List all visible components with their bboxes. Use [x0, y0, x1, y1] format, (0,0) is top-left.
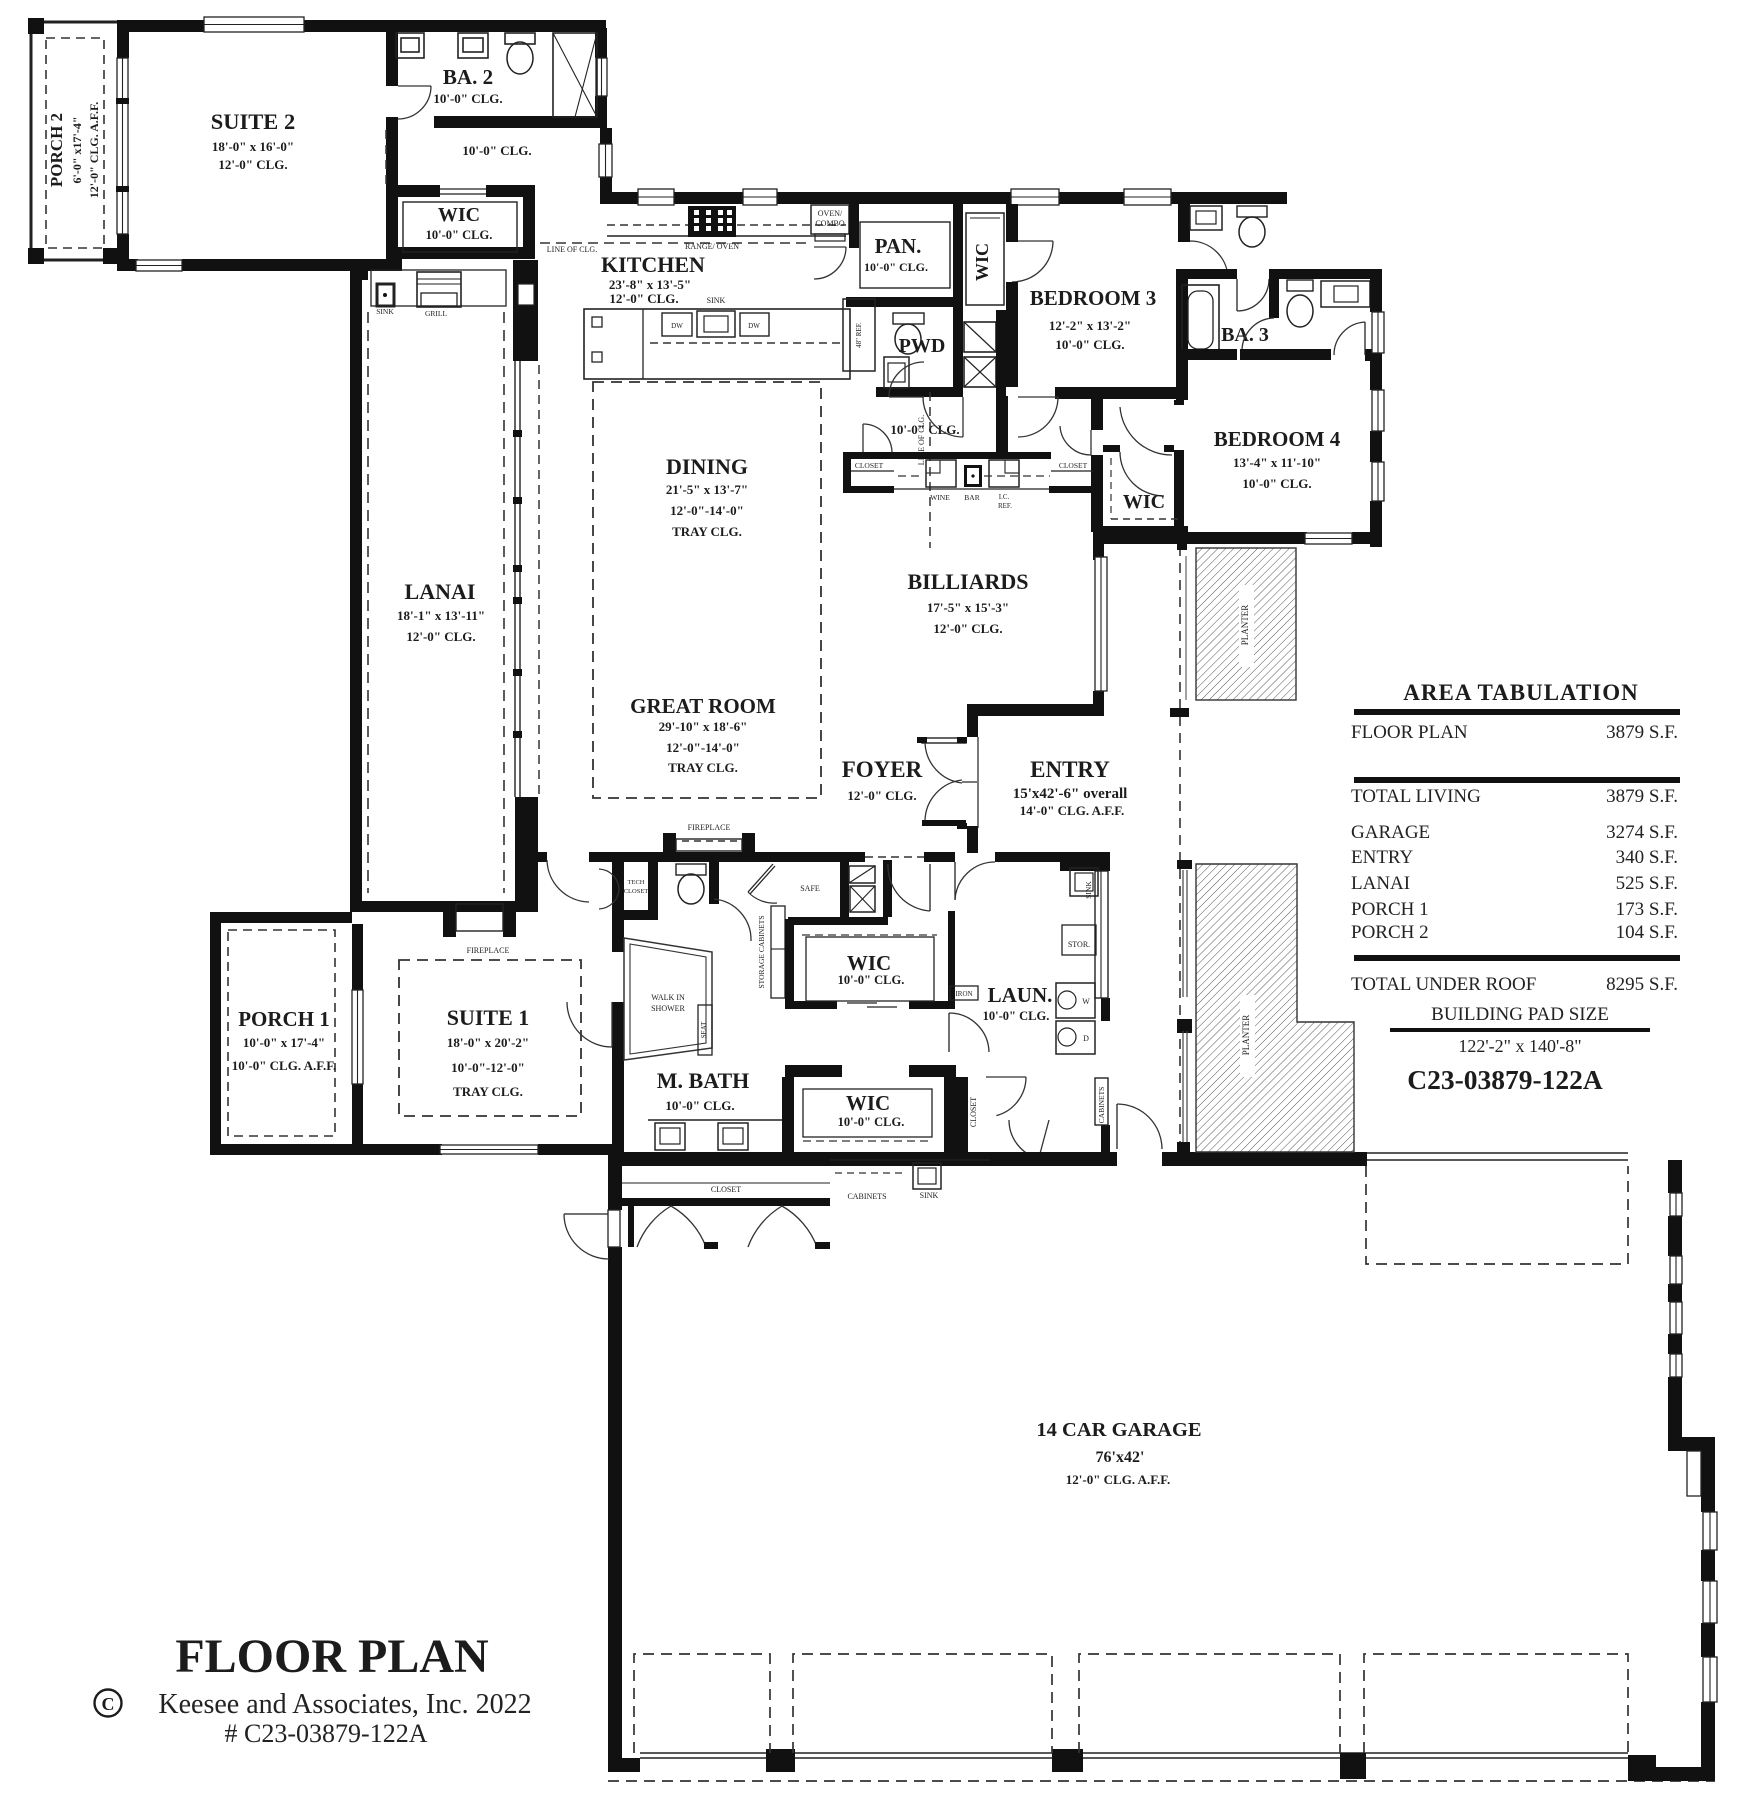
svg-text:COMBO: COMBO [815, 219, 845, 228]
svg-text:12'-0" CLG. A.F.F.: 12'-0" CLG. A.F.F. [87, 102, 101, 198]
svg-text:# C23-03879-122A: # C23-03879-122A [225, 1719, 428, 1748]
svg-text:LINE OF CLG.: LINE OF CLG. [547, 245, 597, 254]
svg-text:BUILDING PAD SIZE: BUILDING PAD SIZE [1431, 1004, 1609, 1025]
svg-text:12'-0"-14'-0": 12'-0"-14'-0" [670, 503, 744, 518]
svg-text:29'-10" x 18'-6": 29'-10" x 18'-6" [659, 719, 748, 734]
svg-text:FLOOR PLAN: FLOOR PLAN [1351, 722, 1468, 743]
svg-text:STORAGE CABINETS: STORAGE CABINETS [757, 916, 766, 989]
svg-text:18'-0" x 20'-2": 18'-0" x 20'-2" [447, 1035, 529, 1050]
svg-text:CLOSET: CLOSET [1059, 461, 1088, 470]
svg-text:SHOWER: SHOWER [651, 1004, 685, 1013]
svg-text:PLANTER: PLANTER [1241, 1015, 1251, 1056]
svg-text:21'-5" x 13'-7": 21'-5" x 13'-7" [666, 482, 748, 497]
svg-text:17'-5" x 15'-3": 17'-5" x 15'-3" [927, 600, 1009, 615]
svg-text:48" REF.: 48" REF. [855, 322, 863, 348]
svg-text:SUITE 1: SUITE 1 [447, 1005, 530, 1030]
svg-text:DINING: DINING [666, 454, 748, 479]
svg-text:12'-0" CLG.: 12'-0" CLG. [406, 629, 475, 644]
svg-text:SINK: SINK [376, 307, 394, 316]
svg-text:3879 S.F.: 3879 S.F. [1606, 786, 1678, 807]
svg-text:12'-0" CLG.: 12'-0" CLG. [609, 291, 678, 306]
svg-text:GARAGE: GARAGE [1351, 822, 1430, 843]
svg-text:WIC: WIC [846, 1091, 890, 1115]
svg-text:76'x42': 76'x42' [1096, 1449, 1145, 1466]
svg-text:BEDROOM 4: BEDROOM 4 [1214, 427, 1341, 451]
svg-text:STOR.: STOR. [1068, 940, 1090, 949]
svg-text:BA. 2: BA. 2 [443, 65, 493, 89]
svg-text:DW: DW [748, 322, 760, 330]
svg-text:BEDROOM 3: BEDROOM 3 [1030, 286, 1157, 310]
svg-text:WIC: WIC [1123, 491, 1165, 513]
svg-text:TOTAL LIVING: TOTAL LIVING [1351, 786, 1481, 807]
svg-text:FLOOR PLAN: FLOOR PLAN [175, 1630, 489, 1683]
svg-text:10'-0" CLG.: 10'-0" CLG. [1242, 476, 1311, 491]
svg-text:CLOSET: CLOSET [624, 888, 649, 895]
svg-text:12'-0"-14'-0": 12'-0"-14'-0" [666, 740, 740, 755]
svg-text:PORCH 2: PORCH 2 [1351, 922, 1429, 943]
svg-text:DW: DW [671, 322, 683, 330]
svg-text:8295 S.F.: 8295 S.F. [1606, 974, 1678, 995]
svg-text:CLOSET: CLOSET [855, 461, 884, 470]
svg-text:10'-0" CLG.: 10'-0" CLG. [1055, 337, 1124, 352]
svg-text:IRON: IRON [955, 990, 972, 998]
svg-text:14'-0" CLG. A.F.F.: 14'-0" CLG. A.F.F. [1020, 803, 1125, 818]
svg-text:PLANTER: PLANTER [1240, 605, 1250, 646]
svg-text:18'-1" x 13'-11": 18'-1" x 13'-11" [397, 608, 485, 623]
svg-text:LANAI: LANAI [405, 579, 476, 604]
svg-text:SINK: SINK [707, 296, 726, 305]
svg-text:PORCH 2: PORCH 2 [47, 113, 66, 187]
svg-text:10'-0" x 17'-4": 10'-0" x 17'-4" [243, 1035, 325, 1050]
svg-text:10'-0"-12'-0": 10'-0"-12'-0" [451, 1060, 525, 1075]
svg-text:10'-0" CLG.: 10'-0" CLG. [983, 1009, 1050, 1023]
svg-text:CLOSET: CLOSET [969, 1097, 978, 1127]
svg-text:AREA TABULATION: AREA TABULATION [1403, 680, 1638, 705]
svg-text:FIREPLACE: FIREPLACE [467, 946, 510, 955]
svg-text:LANAI: LANAI [1351, 873, 1410, 894]
svg-text:I.C.: I.C. [999, 493, 1010, 501]
svg-text:GRILL: GRILL [425, 309, 447, 318]
svg-text:122'-2" x 140'-8": 122'-2" x 140'-8" [1458, 1036, 1581, 1056]
svg-text:SINK: SINK [1084, 881, 1093, 899]
svg-text:WALK IN: WALK IN [651, 993, 685, 1002]
svg-text:SEAT: SEAT [700, 1021, 708, 1038]
svg-text:TRAY CLG.: TRAY CLG. [453, 1084, 523, 1099]
svg-text:18'-0" x 16'-0": 18'-0" x 16'-0" [212, 139, 294, 154]
svg-text:PWD: PWD [899, 335, 946, 357]
svg-text:13'-4" x 11'-10": 13'-4" x 11'-10" [1233, 455, 1321, 470]
svg-text:ENTRY: ENTRY [1030, 757, 1110, 782]
svg-text:PORCH 1: PORCH 1 [1351, 899, 1429, 920]
svg-text:3274 S.F.: 3274 S.F. [1606, 822, 1678, 843]
svg-text:10'-0" CLG.: 10'-0" CLG. [433, 91, 502, 106]
svg-text:6'-0" x17'-4": 6'-0" x17'-4" [70, 117, 84, 184]
svg-text:BAR: BAR [964, 493, 979, 502]
svg-text:BILLIARDS: BILLIARDS [907, 569, 1028, 594]
svg-text:12'-0" CLG.: 12'-0" CLG. [933, 621, 1002, 636]
svg-text:M. BATH: M. BATH [657, 1068, 749, 1093]
svg-text:SUITE 2: SUITE 2 [211, 109, 295, 134]
svg-text:D: D [1083, 1034, 1089, 1043]
svg-text:LAUN.: LAUN. [988, 983, 1053, 1007]
svg-text:TOTAL UNDER ROOF: TOTAL UNDER ROOF [1351, 974, 1536, 995]
svg-text:CABINETS: CABINETS [847, 1192, 886, 1201]
svg-text:C23-03879-122A: C23-03879-122A [1407, 1064, 1603, 1095]
svg-text:3879 S.F.: 3879 S.F. [1606, 722, 1678, 743]
svg-text:Keesee and Associates, Inc. 20: Keesee and Associates, Inc. 2022 [158, 1689, 531, 1720]
svg-text:104 S.F.: 104 S.F. [1616, 922, 1678, 943]
svg-text:10'-0" CLG.: 10'-0" CLG. [838, 1115, 905, 1129]
svg-text:12'-0" CLG.: 12'-0" CLG. [847, 788, 916, 803]
svg-text:C: C [102, 1694, 115, 1714]
svg-text:WINE: WINE [930, 493, 950, 502]
svg-text:PORCH 1: PORCH 1 [238, 1007, 330, 1031]
svg-text:BA. 3: BA. 3 [1221, 324, 1269, 346]
svg-text:PAN.: PAN. [875, 234, 922, 258]
svg-text:TRAY CLG.: TRAY CLG. [672, 524, 742, 539]
svg-text:TRAY CLG.: TRAY CLG. [668, 760, 738, 775]
svg-text:340 S.F.: 340 S.F. [1616, 847, 1678, 868]
svg-text:W: W [1082, 997, 1090, 1006]
svg-text:10'-0" CLG.: 10'-0" CLG. [462, 143, 531, 158]
svg-text:173 S.F.: 173 S.F. [1616, 899, 1678, 920]
svg-text:10'-0" CLG.: 10'-0" CLG. [665, 1098, 734, 1113]
svg-text:WIC: WIC [972, 243, 992, 281]
svg-text:14 CAR GARAGE: 14 CAR GARAGE [1036, 1419, 1201, 1441]
svg-text:ENTRY: ENTRY [1351, 847, 1414, 868]
svg-text:15'x42'-6" overall: 15'x42'-6" overall [1013, 786, 1128, 802]
svg-text:OVEN/: OVEN/ [818, 209, 843, 218]
svg-text:23'-8" x 13'-5": 23'-8" x 13'-5" [609, 277, 691, 292]
svg-text:WIC: WIC [438, 204, 480, 226]
svg-text:12'-0" CLG.: 12'-0" CLG. [218, 157, 287, 172]
svg-text:GREAT ROOM: GREAT ROOM [630, 694, 776, 718]
svg-text:REF.: REF. [998, 502, 1012, 510]
svg-text:525 S.F.: 525 S.F. [1616, 873, 1678, 894]
svg-text:10'-0" CLG.: 10'-0" CLG. [426, 228, 493, 242]
svg-text:KITCHEN: KITCHEN [601, 252, 705, 277]
svg-text:10'-0" CLG.: 10'-0" CLG. [864, 260, 928, 274]
svg-text:10'-0" CLG. A.F.F.: 10'-0" CLG. A.F.F. [232, 1058, 337, 1073]
svg-text:FOYER: FOYER [842, 757, 923, 782]
svg-text:CLOSET: CLOSET [711, 1185, 741, 1194]
svg-text:12'-2" x 13'-2": 12'-2" x 13'-2" [1049, 318, 1131, 333]
svg-text:SINK: SINK [920, 1191, 939, 1200]
svg-text:WIC: WIC [847, 951, 891, 975]
svg-text:SAFE: SAFE [800, 884, 820, 893]
svg-text:10'-0" CLG.: 10'-0" CLG. [838, 973, 905, 987]
svg-text:FIREPLACE: FIREPLACE [688, 823, 731, 832]
svg-text:CABINETS: CABINETS [1097, 1087, 1106, 1124]
svg-text:12'-0" CLG. A.F.F.: 12'-0" CLG. A.F.F. [1066, 1472, 1171, 1487]
svg-text:TECH: TECH [628, 879, 645, 886]
